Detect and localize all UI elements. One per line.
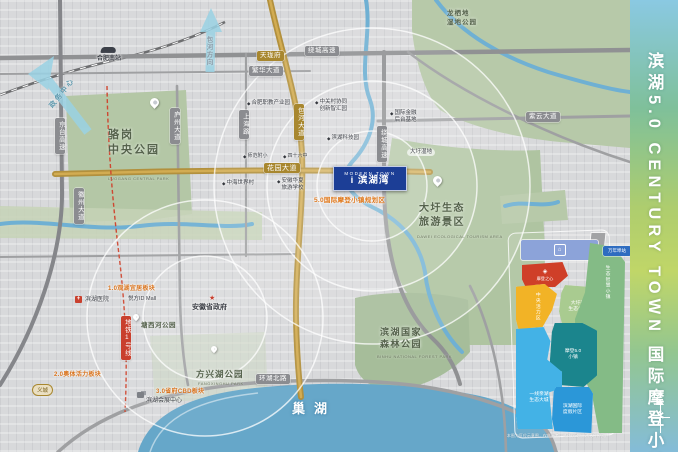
masterplan-inset: ⌂ ◈ 摩登之心 中央活力区 大圩南 生态公园 生态智慧小镇 摩登5.0 小镇 … [505, 195, 630, 445]
poi-zhongguancun: ◆中关村协同 创新智汇园 [315, 99, 347, 113]
bullet-icon: ◆ [327, 135, 330, 142]
dawei-en: DAWEI ECOLOGICAL TOURISM AREA [417, 234, 503, 239]
chaohu-lake-label: 巢湖 [292, 398, 336, 417]
project-tagline: 5.0国际摩登小镇规划区 [314, 194, 385, 204]
gov-star-icon: ★ [209, 294, 215, 302]
zone-1-label: 1.0观湖宜居板块 [108, 283, 155, 292]
gateway-icon: ⌂ [554, 244, 566, 256]
poi-normal-primary: ◆师范附小 [243, 153, 267, 160]
poi-binhu-hospital: 滨湖医院 [85, 297, 109, 305]
project-logo-cn: i 滨湖湾 [351, 176, 390, 186]
luogang-park-en: LUOGANG CENTRAL PARK [108, 176, 169, 181]
poi-tech-park: ◆滨湖科技园 [327, 135, 359, 142]
fangxinghu-label: 方兴湖公园 [196, 369, 244, 380]
lakefront-city-label: 一线亲湖 生态大城 [529, 392, 548, 405]
poi-zhonghai: ◆中海世界村 [222, 180, 254, 187]
poi-dawei-wetland: 大圩湿地 [407, 149, 435, 156]
poi-no46-school: ◆四十六中 [283, 153, 307, 160]
bullet-icon: ◆ [390, 110, 393, 117]
compass-hline [650, 417, 670, 418]
bullet-icon: ◆ [315, 99, 318, 106]
road-badge-metro-line1: 地铁1号线 [121, 316, 131, 360]
road-badge-huizhou-ave: 徽州大道 [74, 188, 84, 224]
poi-finance-base: ◆国际金融 后台基地 [390, 110, 416, 124]
compass: N [648, 392, 672, 436]
poi-yuefang-mall: 悦方ID Mall [128, 296, 156, 303]
road-badge-fanhua-ave: 繁华大道 [249, 66, 283, 76]
bullet-icon: ◆ [243, 153, 246, 160]
longqidi-park-label: 龙栖地 湿地公园 [447, 10, 477, 28]
road-badge-shanghai-rd: 上海路 [239, 110, 249, 139]
poi-vocational-park: ◆合肥职教产业园 [247, 100, 290, 107]
road-badge-luzhou-ave: 庐州大道 [170, 108, 180, 144]
project-logo: MODERN TOWN i 滨湖湾 [333, 166, 407, 191]
road-badge-jingtai-expwy: 京台高速 [55, 118, 65, 154]
poi-huaxia-school: ◆安徽华夏 旅游学校 [277, 178, 303, 192]
compass-n-label: N [657, 392, 662, 399]
poi-hefei-south-station: 合肥南站 [97, 56, 121, 64]
road-badge-baohe-ave: 包河大道 [294, 104, 304, 140]
side-banner: 滨湖5.0 CENTURY TOWN 国际摩登小镇 [630, 0, 678, 452]
poi-provincial-government: 安徽省政府 [192, 303, 227, 312]
road-badge-ziyun-ave: 紫云大道 [526, 112, 560, 122]
zone-2-label: 2.0奥体活力板块 [54, 369, 101, 378]
road-badge-huanhu-north: 环湖北路 [256, 374, 290, 384]
smart-town-label: 生态智慧小镇 [603, 265, 609, 300]
central-vitality-label: 中央活力区 [533, 292, 539, 321]
station-badge: 万年埠站 [603, 246, 631, 256]
block-gateway: ⌂ [521, 240, 598, 260]
road-badge-tianlongfu: 天珑府 [257, 51, 284, 61]
road-badge-huayuan-ave: 花园大道 [264, 163, 300, 173]
road-badge-ring-expwy-top: 绕城高速 [305, 46, 339, 56]
bullet-icon: ◆ [277, 178, 280, 185]
map-poster: 政务中心 包河方向 绕城高速 天珑府 繁华大道 紫云大道 花园大道 环湖北路 京… [0, 0, 678, 452]
forest-park-label: 滨湖国家 森林公园 [380, 326, 422, 350]
resort-area-label: 滨湖国际 度假片区 [563, 404, 582, 417]
bullet-icon: ◆ [283, 153, 286, 160]
modern-heart-icon: ◈ [543, 268, 548, 276]
modern-heart-label: 摩登之心 [537, 276, 554, 282]
forest-park-en: BINHU NATIONAL FOREST PARK [377, 354, 452, 359]
fangxinghu-en: FANGXINGHU PARK [198, 381, 244, 386]
expo-building-icon [137, 392, 144, 398]
tangxihe-label: 塘西河公园 [141, 322, 176, 331]
poi-yicheng-badge: 义城 [32, 384, 53, 396]
train-station-icon [100, 47, 116, 53]
inset-caption: 本图为区位示意图，仅供参考，最终以政府规划文件为准 [507, 434, 630, 439]
bullet-icon: ◆ [247, 100, 250, 107]
poi-expo-center: 滨湖会展中心 [146, 398, 182, 406]
modern-5-town-label: 摩登5.0 小镇 [565, 349, 581, 362]
luogang-park-label: 骆岗 中央公园 [108, 128, 160, 158]
block-resort-area: 滨湖国际 度假片区 [552, 387, 593, 433]
arrow-label-north: 包河方向 [203, 36, 213, 66]
distance-rings [87, 28, 530, 436]
dawei-label: 大圩生态 旅游景区 [419, 202, 465, 229]
hospital-cross-icon: + [75, 296, 82, 303]
zone-3-label: 3.0省府CBD板块 [156, 386, 204, 395]
bullet-icon: ◆ [222, 180, 225, 187]
road-badge-ring-expwy-east: 绕城高速 [377, 126, 387, 162]
